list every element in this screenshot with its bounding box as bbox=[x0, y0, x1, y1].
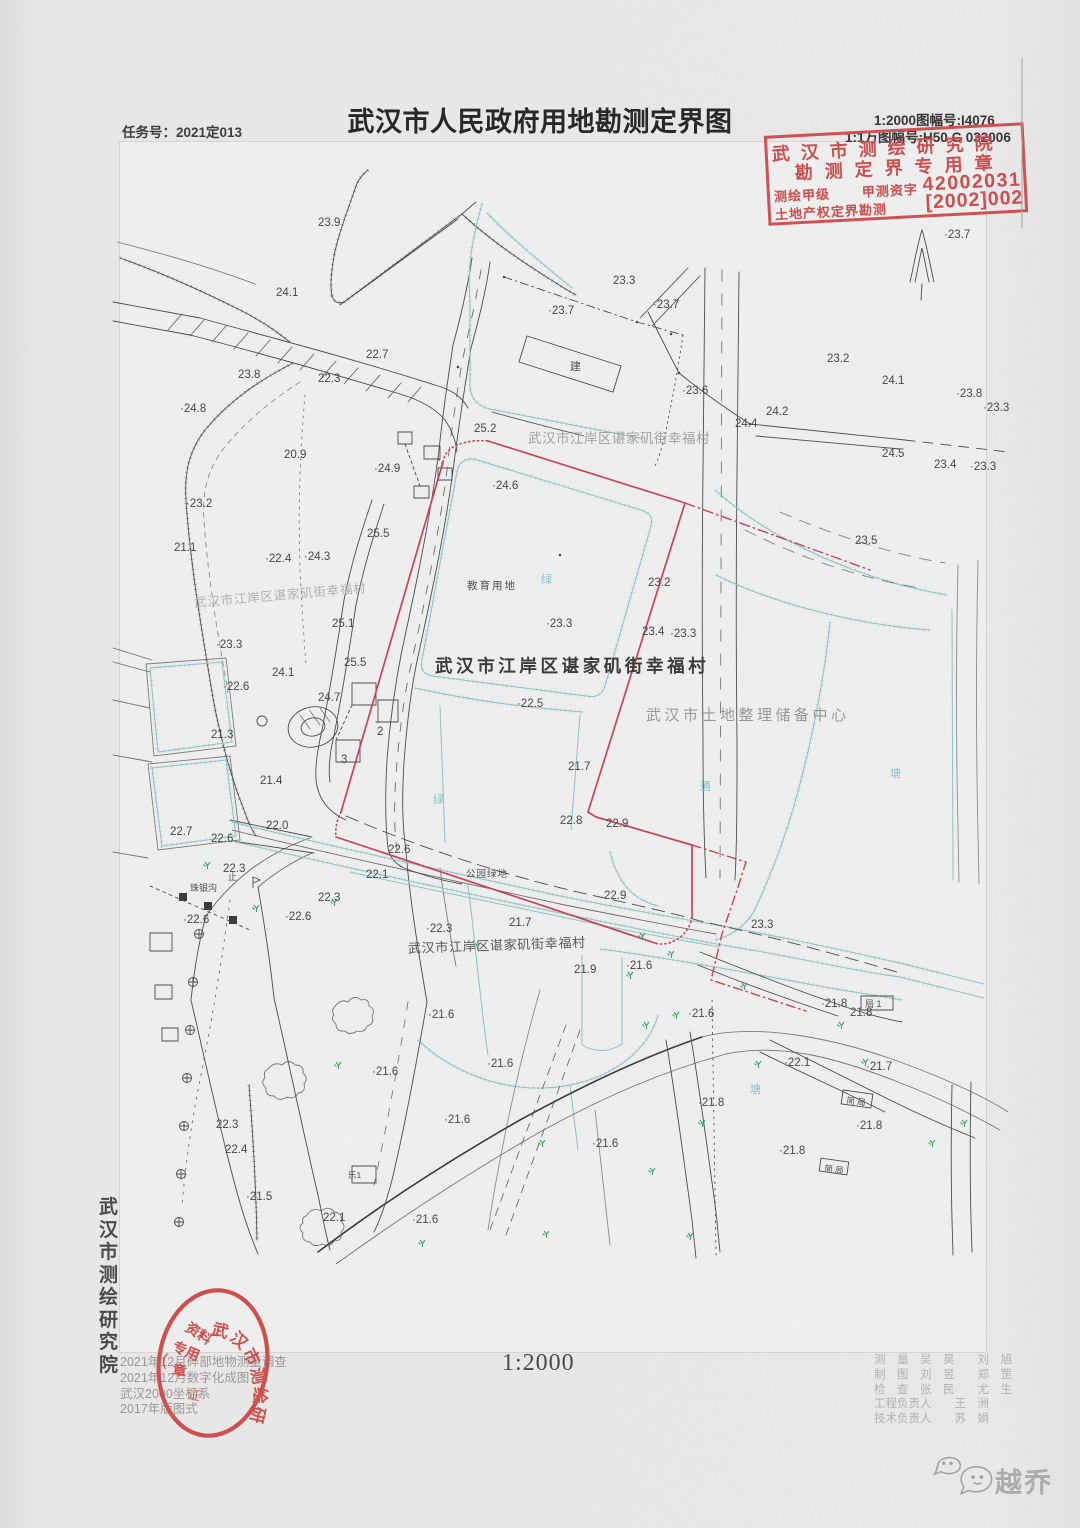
svg-text:21.4: 21.4 bbox=[260, 775, 283, 787]
svg-text:20.9: 20.9 bbox=[284, 449, 306, 461]
svg-text:·22.6: ·22.6 bbox=[223, 681, 249, 693]
svg-text:22.7: 22.7 bbox=[170, 826, 192, 838]
svg-text:·22.5: ·22.5 bbox=[517, 698, 543, 710]
svg-text:止: 止 bbox=[228, 871, 237, 882]
svg-text:22.7: 22.7 bbox=[366, 349, 388, 361]
svg-text:·21.7: ·21.7 bbox=[866, 1061, 892, 1073]
svg-text:建: 建 bbox=[570, 359, 581, 373]
svg-text:·23.6: ·23.6 bbox=[682, 385, 708, 397]
svg-text:21.1: 21.1 bbox=[174, 542, 196, 554]
svg-text:24.2: 24.2 bbox=[766, 406, 788, 418]
svg-text:·21.8: ·21.8 bbox=[698, 1097, 724, 1109]
svg-text:武汉市江岸区谌家矶街幸福村: 武汉市江岸区谌家矶街幸福村 bbox=[528, 430, 710, 446]
svg-text:·24.9: ·24.9 bbox=[374, 463, 400, 475]
svg-text:·21.6: ·21.6 bbox=[626, 960, 652, 972]
svg-text:绿: 绿 bbox=[433, 792, 444, 806]
svg-text:23.4: 23.4 bbox=[934, 459, 957, 471]
svg-text:·21.6: ·21.6 bbox=[372, 1066, 398, 1078]
svg-text:25.5: 25.5 bbox=[367, 528, 389, 540]
svg-text:武汉市土地整理储备中心: 武汉市土地整理储备中心 bbox=[646, 707, 850, 724]
svg-text:24.1: 24.1 bbox=[882, 375, 904, 387]
svg-text:22.1: 22.1 bbox=[323, 1212, 345, 1224]
svg-text:公园绿地: 公园绿地 bbox=[466, 868, 508, 880]
svg-text:23.3: 23.3 bbox=[751, 919, 773, 931]
svg-text:·21.6: ·21.6 bbox=[428, 1009, 454, 1021]
svg-text:·21.6: ·21.6 bbox=[487, 1058, 513, 1070]
svg-text:·23.8: ·23.8 bbox=[956, 388, 982, 400]
svg-text:23.5: 23.5 bbox=[855, 535, 877, 547]
svg-text:乐1: 乐1 bbox=[348, 1170, 362, 1180]
svg-text:23.4: 23.4 bbox=[642, 626, 665, 638]
svg-text:22.8: 22.8 bbox=[560, 815, 582, 827]
svg-text:24.7: 24.7 bbox=[318, 692, 340, 704]
svg-text:24.1: 24.1 bbox=[272, 667, 294, 679]
svg-text:证: 证 bbox=[186, 1387, 201, 1404]
svg-text:3: 3 bbox=[341, 754, 347, 766]
svg-text:·23.7: ·23.7 bbox=[548, 305, 574, 317]
svg-text:·24.3: ·24.3 bbox=[304, 551, 330, 563]
svg-text:·22.1: ·22.1 bbox=[784, 1057, 810, 1069]
svg-text:22.1: 22.1 bbox=[366, 869, 388, 881]
svg-text:局 1: 局 1 bbox=[865, 999, 882, 1009]
svg-text:22.0: 22.0 bbox=[266, 820, 288, 832]
svg-text:22.3: 22.3 bbox=[318, 892, 340, 904]
svg-text:25.2: 25.2 bbox=[474, 423, 496, 435]
svg-text:绿: 绿 bbox=[541, 572, 552, 586]
svg-text:·22.6: ·22.6 bbox=[183, 914, 209, 926]
svg-text:·21.6: ·21.6 bbox=[412, 1214, 438, 1226]
svg-text:24.4: 24.4 bbox=[735, 418, 758, 430]
svg-text:21.3: 21.3 bbox=[211, 729, 233, 741]
svg-text:·22.3: ·22.3 bbox=[426, 923, 452, 935]
svg-text:21.7: 21.7 bbox=[509, 917, 531, 929]
svg-text:·21.8: ·21.8 bbox=[856, 1120, 882, 1132]
svg-text:越乔: 越乔 bbox=[995, 1468, 1053, 1498]
svg-text:·23.7: ·23.7 bbox=[944, 229, 970, 241]
svg-text:·23.3: ·23.3 bbox=[970, 461, 996, 473]
svg-text:·24.6: ·24.6 bbox=[492, 480, 518, 492]
svg-text:武汉市江岸区谌家矶街幸福村: 武汉市江岸区谌家矶街幸福村 bbox=[194, 580, 368, 610]
svg-text:21.7: 21.7 bbox=[568, 761, 590, 773]
svg-text:23.8: 23.8 bbox=[238, 369, 260, 381]
svg-text:塘: 塘 bbox=[750, 1082, 761, 1096]
svg-text:23.9: 23.9 bbox=[318, 217, 340, 229]
svg-text:塘: 塘 bbox=[890, 766, 901, 780]
svg-text:·21.5: ·21.5 bbox=[246, 1191, 272, 1203]
svg-text:珠银沟: 珠银沟 bbox=[190, 882, 217, 893]
svg-text:通: 通 bbox=[700, 780, 711, 793]
svg-text:23.2: 23.2 bbox=[827, 353, 849, 365]
svg-text:·21.6: ·21.6 bbox=[592, 1138, 618, 1150]
svg-text:简 局: 简 局 bbox=[846, 1095, 867, 1108]
svg-text:25.5: 25.5 bbox=[344, 657, 366, 669]
svg-text:教育用地: 教育用地 bbox=[467, 579, 517, 592]
svg-text:·23.3: ·23.3 bbox=[670, 628, 696, 640]
svg-text:2: 2 bbox=[377, 726, 383, 738]
svg-text:22.4: 22.4 bbox=[225, 1144, 248, 1156]
svg-text:武汉市江岸区谌家矶街幸福村: 武汉市江岸区谌家矶街幸福村 bbox=[408, 935, 587, 956]
svg-text:简 局: 简 局 bbox=[824, 1163, 845, 1176]
svg-text:22.9: 22.9 bbox=[606, 818, 628, 830]
svg-text:·23.7: ·23.7 bbox=[653, 299, 679, 311]
svg-text:·23.3: ·23.3 bbox=[983, 402, 1009, 414]
svg-text:·21.8: ·21.8 bbox=[821, 998, 847, 1010]
svg-text:24.1: 24.1 bbox=[276, 287, 298, 299]
svg-text:·22.6: ·22.6 bbox=[285, 911, 311, 923]
svg-text:23.2: 23.2 bbox=[648, 577, 670, 589]
svg-text:·23.2: ·23.2 bbox=[186, 498, 212, 510]
svg-text:25.1: 25.1 bbox=[332, 618, 354, 630]
svg-text:专用: 专用 bbox=[170, 1338, 202, 1364]
svg-text:22.3: 22.3 bbox=[318, 373, 340, 385]
svg-text:·21.6: ·21.6 bbox=[688, 1008, 714, 1020]
svg-text:(: ( bbox=[161, 1350, 170, 1370]
svg-text:·24.8: ·24.8 bbox=[180, 403, 206, 415]
svg-text:23.3: 23.3 bbox=[613, 275, 635, 287]
svg-text:·21.6: ·21.6 bbox=[444, 1114, 470, 1126]
svg-text:·21.8: ·21.8 bbox=[779, 1145, 805, 1157]
svg-text:22.9: 22.9 bbox=[604, 890, 626, 902]
svg-text:·22.4: ·22.4 bbox=[265, 553, 292, 565]
svg-text:22.3: 22.3 bbox=[216, 1119, 238, 1131]
svg-text:章: 章 bbox=[172, 1362, 188, 1380]
svg-text:22.6: 22.6 bbox=[388, 844, 410, 856]
svg-text:22.6: 22.6 bbox=[211, 833, 233, 845]
svg-text:武汉市江岸区谌家矶街幸福村: 武汉市江岸区谌家矶街幸福村 bbox=[435, 656, 709, 676]
svg-text:24.5: 24.5 bbox=[882, 448, 904, 460]
svg-text:·23.3: ·23.3 bbox=[216, 639, 242, 651]
svg-text:·23.3: ·23.3 bbox=[546, 618, 572, 630]
svg-text:21.9: 21.9 bbox=[574, 964, 596, 976]
